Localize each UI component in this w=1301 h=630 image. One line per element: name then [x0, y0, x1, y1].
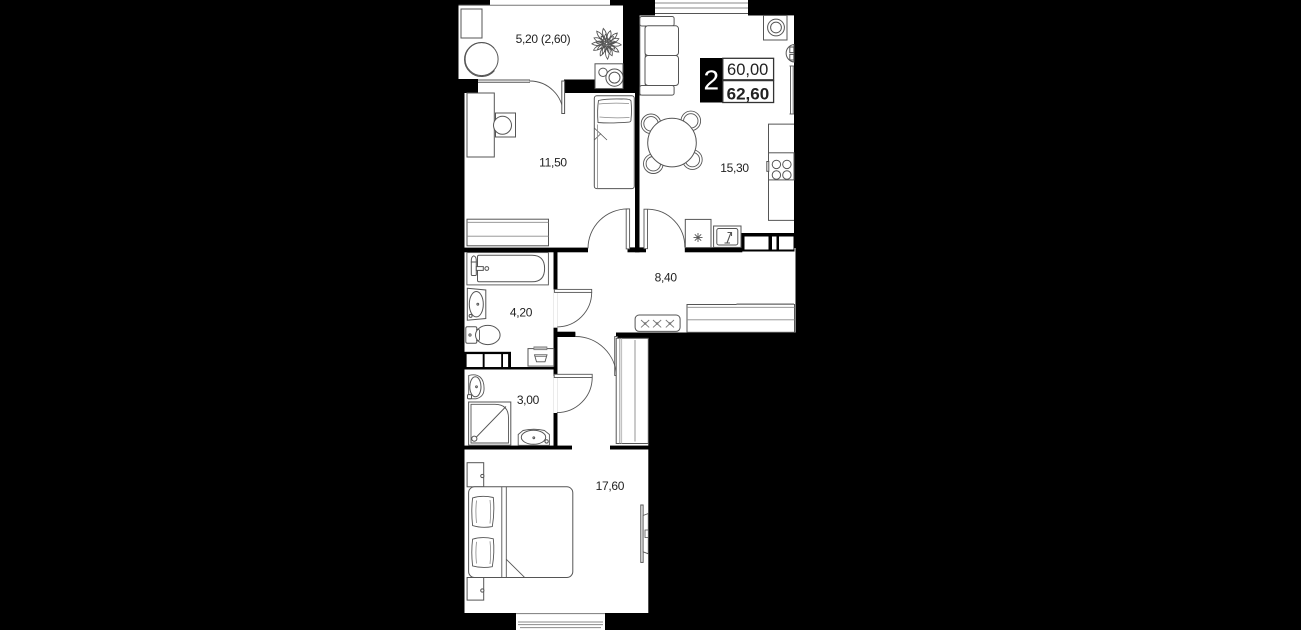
svg-text:8,40: 8,40 [655, 271, 678, 285]
svg-text:11,50: 11,50 [539, 155, 567, 169]
svg-text:62,60: 62,60 [727, 84, 770, 103]
svg-text:2: 2 [704, 64, 720, 95]
svg-text:15,30: 15,30 [720, 161, 749, 175]
svg-text:4,20: 4,20 [510, 306, 533, 320]
svg-text:60,00: 60,00 [727, 61, 768, 79]
svg-text:3,00: 3,00 [517, 393, 540, 407]
svg-text:17,60: 17,60 [596, 479, 625, 493]
svg-text:5,20 (2,60): 5,20 (2,60) [516, 32, 571, 46]
